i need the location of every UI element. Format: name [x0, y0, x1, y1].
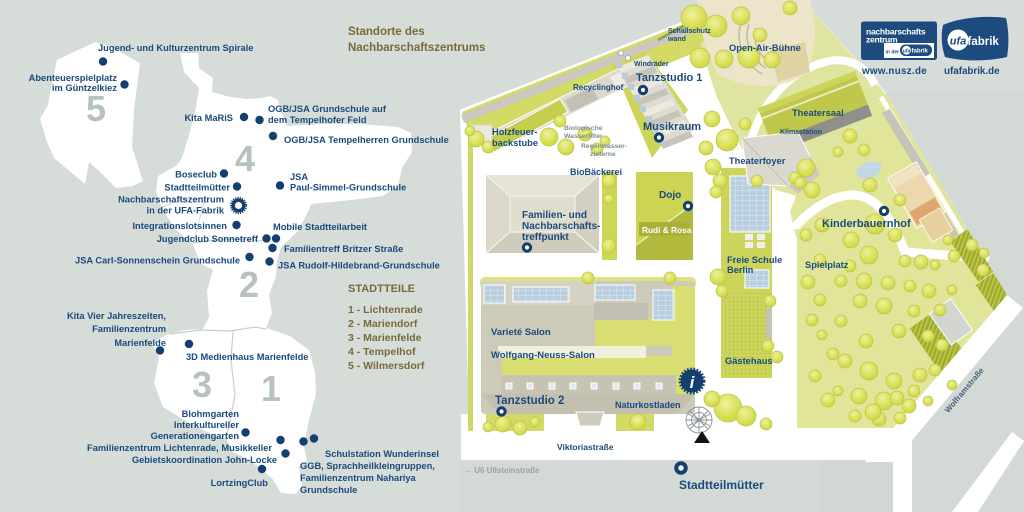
svg-text:Nachbarschaftszentrums: Nachbarschaftszentrums [348, 42, 485, 54]
svg-text:3D Medienhaus Marienfelde: 3D Medienhaus Marienfelde [186, 352, 308, 362]
svg-text:2: 2 [239, 264, 259, 305]
svg-text:STADTTEILE: STADTTEILE [348, 283, 415, 295]
svg-text:Viktoriastraße: Viktoriastraße [557, 442, 614, 452]
svg-text:Boseclub: Boseclub [175, 170, 217, 180]
svg-text:Familienzentrum Nahariya: Familienzentrum Nahariya [300, 473, 417, 483]
svg-text:Regenwasser-: Regenwasser- [581, 143, 627, 150]
svg-text:OGB/JSA Grundschule auf: OGB/JSA Grundschule auf [268, 104, 387, 114]
svg-text:fabrik: fabrik [968, 36, 1000, 48]
svg-text:Rudi & Rosa: Rudi & Rosa [642, 225, 692, 235]
svg-text:Klimastation: Klimastation [780, 129, 822, 136]
svg-text:1: 1 [261, 368, 281, 409]
svg-text:Wolfgang-Neuss-Salon: Wolfgang-Neuss-Salon [491, 350, 595, 361]
svg-text:Freie Schule: Freie Schule [727, 255, 782, 265]
svg-text:Interkultureller: Interkultureller [174, 420, 239, 430]
svg-text:Holzfeuer-: Holzfeuer- [492, 127, 537, 137]
svg-text:Kita Vier Jahreszeiten,: Kita Vier Jahreszeiten, [67, 311, 166, 321]
svg-text:Familien- und: Familien- und [522, 210, 587, 221]
svg-text:JSA: JSA [290, 172, 308, 182]
svg-text:in der: in der [886, 50, 900, 56]
svg-text:LortzingClub: LortzingClub [211, 478, 269, 488]
svg-text:ufa: ufa [903, 48, 911, 54]
svg-text:Schulstation Wunderinsel: Schulstation Wunderinsel [325, 449, 439, 459]
svg-text:Berlin: Berlin [727, 265, 754, 275]
svg-text:3 - Marienfelde: 3 - Marienfelde [348, 332, 422, 344]
svg-text:OGB/JSA Tempelherren Grundschu: OGB/JSA Tempelherren Grundschule [284, 135, 449, 145]
svg-text:im Güntzelkiez: im Güntzelkiez [52, 83, 117, 93]
svg-text:Integrationslotsinnen: Integrationslotsinnen [132, 221, 227, 231]
svg-text:1 - Lichtenrade: 1 - Lichtenrade [348, 304, 423, 316]
svg-text:treffpunkt: treffpunkt [522, 232, 569, 243]
svg-text:Dojo: Dojo [659, 190, 681, 201]
svg-text:5: 5 [86, 88, 106, 129]
svg-text:Blohmgarten: Blohmgarten [182, 409, 240, 419]
svg-text:Schallschutz: Schallschutz [668, 28, 711, 35]
svg-text:Windräder: Windräder [634, 61, 669, 68]
svg-text:Gästehaus: Gästehaus [725, 356, 773, 366]
svg-text:3: 3 [192, 364, 212, 405]
svg-text:backstube: backstube [492, 138, 538, 148]
svg-text:Mobile Stadtteilarbeit: Mobile Stadtteilarbeit [273, 222, 367, 232]
svg-text:← U6 Ullsteinstraße: ← U6 Ullsteinstraße [464, 466, 540, 475]
svg-text:Wasserfilter: Wasserfilter [564, 133, 603, 140]
svg-text:GGB, Sprachheilkleingruppen,: GGB, Sprachheilkleingruppen, [300, 461, 435, 471]
svg-text:Stadtteilmütter: Stadtteilmütter [164, 183, 230, 193]
svg-text:Recyclinghof: Recyclinghof [573, 83, 624, 92]
svg-text:JSA Carl-Sonnenschein Grundsch: JSA Carl-Sonnenschein Grundschule [75, 256, 240, 266]
svg-text:Kita MaRiS: Kita MaRiS [184, 113, 233, 123]
svg-text:wand: wand [667, 36, 686, 43]
svg-text:Musikraum: Musikraum [643, 121, 701, 133]
svg-text:ufafabrik.de: ufafabrik.de [944, 66, 1000, 77]
svg-text:Marienfelde: Marienfelde [114, 338, 166, 348]
svg-text:Jugend- und Kulturzentrum Spir: Jugend- und Kulturzentrum Spirale [98, 43, 253, 53]
svg-text:Stadtteilmütter: Stadtteilmütter [679, 478, 764, 492]
svg-text:www.nusz.de: www.nusz.de [861, 66, 927, 77]
svg-text:Varieté Salon: Varieté Salon [491, 327, 551, 338]
svg-text:Spielplatz: Spielplatz [805, 260, 849, 270]
svg-text:Generationengarten: Generationengarten [151, 431, 240, 441]
svg-text:Nachbarschaftszentrum: Nachbarschaftszentrum [118, 195, 224, 205]
svg-text:ufa: ufa [950, 36, 967, 48]
svg-text:Jugendclub Sonnetreff: Jugendclub Sonnetreff [157, 234, 259, 244]
svg-text:Open-Air-Bühne: Open-Air-Bühne [729, 43, 801, 53]
svg-text:Gebietskoordination John-Locke: Gebietskoordination John-Locke [132, 455, 277, 465]
svg-text:4: 4 [235, 138, 255, 179]
svg-text:5 - Wilmersdorf: 5 - Wilmersdorf [348, 360, 425, 372]
svg-text:Naturkostladen: Naturkostladen [615, 400, 681, 410]
svg-text:4 - Tempelhof: 4 - Tempelhof [348, 346, 416, 358]
svg-text:Familienzentrum Lichtenrade, M: Familienzentrum Lichtenrade, Musikkeller [87, 443, 272, 453]
svg-text:Abenteuerspielplatz: Abenteuerspielplatz [29, 73, 118, 83]
svg-text:Theatersaal: Theatersaal [792, 108, 844, 118]
svg-text:Standorte des: Standorte des [348, 26, 425, 38]
svg-text:zisterne: zisterne [590, 151, 616, 158]
svg-text:fabrik: fabrik [912, 49, 929, 55]
svg-text:in der UFA-Fabrik: in der UFA-Fabrik [147, 206, 225, 216]
svg-text:dem Tempelhofer Feld: dem Tempelhofer Feld [268, 115, 367, 125]
svg-text:Grundschule: Grundschule [300, 485, 357, 495]
svg-text:Tanzstudio 1: Tanzstudio 1 [636, 72, 702, 84]
svg-text:Kinderbauernhof: Kinderbauernhof [822, 218, 911, 230]
svg-text:Paul-Simmel-Grundschule: Paul-Simmel-Grundschule [290, 183, 406, 193]
svg-text:Biologische: Biologische [564, 125, 603, 132]
svg-text:Familienzentrum: Familienzentrum [92, 324, 166, 334]
svg-text:Theaterfoyer: Theaterfoyer [729, 156, 786, 166]
svg-text:BioBäckerei: BioBäckerei [570, 167, 622, 177]
svg-text:JSA Rudolf-Hildebrand-Grundsch: JSA Rudolf-Hildebrand-Grundschule [278, 261, 440, 271]
svg-text:Tanzstudio 2: Tanzstudio 2 [495, 395, 564, 407]
svg-text:Nachbarschafts-: Nachbarschafts- [522, 221, 600, 232]
svg-text:Familientreff Britzer Straße: Familientreff Britzer Straße [284, 244, 403, 254]
svg-text:2 - Mariendorf: 2 - Mariendorf [348, 318, 418, 330]
